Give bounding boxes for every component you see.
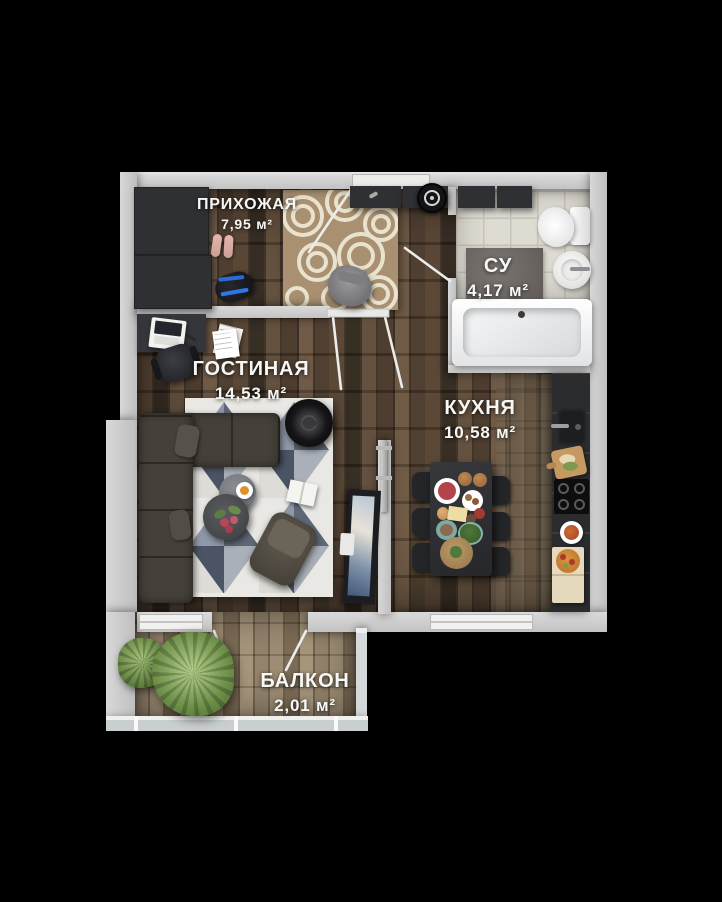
hallway-wardrobe-bottom: [134, 255, 212, 309]
balcony-plant-large: [152, 632, 234, 716]
toilet: [538, 205, 592, 250]
room-area: 2,01 м²: [260, 696, 349, 716]
room-label-balcony: БАЛКОН 2,01 м²: [260, 670, 349, 716]
plate-meat: [434, 478, 460, 504]
wall-bath-top-seg: [448, 187, 456, 215]
wall-under-bathtub: [448, 365, 590, 373]
room-label-living: ГОСТИНАЯ 14,53 м²: [193, 358, 310, 404]
room-name: ГОСТИНАЯ: [193, 358, 310, 381]
balcony-right-glass: [356, 628, 367, 730]
shoe-right: [223, 235, 233, 258]
cooktop: [554, 479, 589, 514]
bathroom-sink: [553, 251, 593, 291]
window-living-balcony: [139, 614, 203, 630]
room-label-bathroom: СУ 4,17 м²: [467, 255, 529, 301]
bun: [458, 472, 472, 486]
tv: [343, 489, 381, 605]
bathtub: [452, 299, 592, 366]
coffee-cup: [236, 482, 253, 499]
room-area: 4,17 м²: [467, 281, 529, 301]
wall-left-bump: [106, 420, 137, 612]
room-area: 14,53 м²: [193, 384, 310, 404]
room-name: ПРИХОЖАЯ: [197, 196, 297, 214]
bath-shelf-left: [458, 186, 495, 208]
room-label-hallway: ПРИХОЖАЯ 7,95 м²: [197, 196, 297, 232]
papers: [214, 326, 242, 358]
wall-right: [590, 172, 607, 632]
room-name: СУ: [467, 255, 529, 278]
kitchen-sink: [557, 408, 587, 446]
room-area: 10,58 м²: [444, 423, 516, 443]
bathtub-drain: [518, 311, 525, 318]
bun: [473, 473, 487, 487]
floorplan: ПРИХОЖАЯ 7,95 м² СУ 4,17 м² ГОСТИНАЯ 14,…: [0, 0, 722, 902]
dining-table: [430, 462, 492, 576]
sofa-pillow-2: [168, 509, 192, 541]
balcony-glass-railing: [106, 716, 368, 731]
bath-shelf-right: [497, 186, 532, 208]
room-name: БАЛКОН: [260, 670, 349, 693]
pizza-box: [552, 547, 584, 603]
window-kitchen: [430, 614, 533, 630]
room-area: 7,95 м²: [197, 216, 297, 232]
entry-cabinet-left: [350, 186, 401, 208]
food-plate: [560, 521, 583, 544]
wooden-board: [440, 537, 473, 569]
robot-vacuum: [417, 183, 447, 213]
table-flowers: [210, 500, 246, 536]
room-label-kitchen: КУХНЯ 10,58 м²: [444, 397, 516, 443]
floor-lamp-pole: [381, 440, 387, 512]
floor-fan: [285, 399, 333, 447]
room-name: КУХНЯ: [444, 397, 516, 420]
